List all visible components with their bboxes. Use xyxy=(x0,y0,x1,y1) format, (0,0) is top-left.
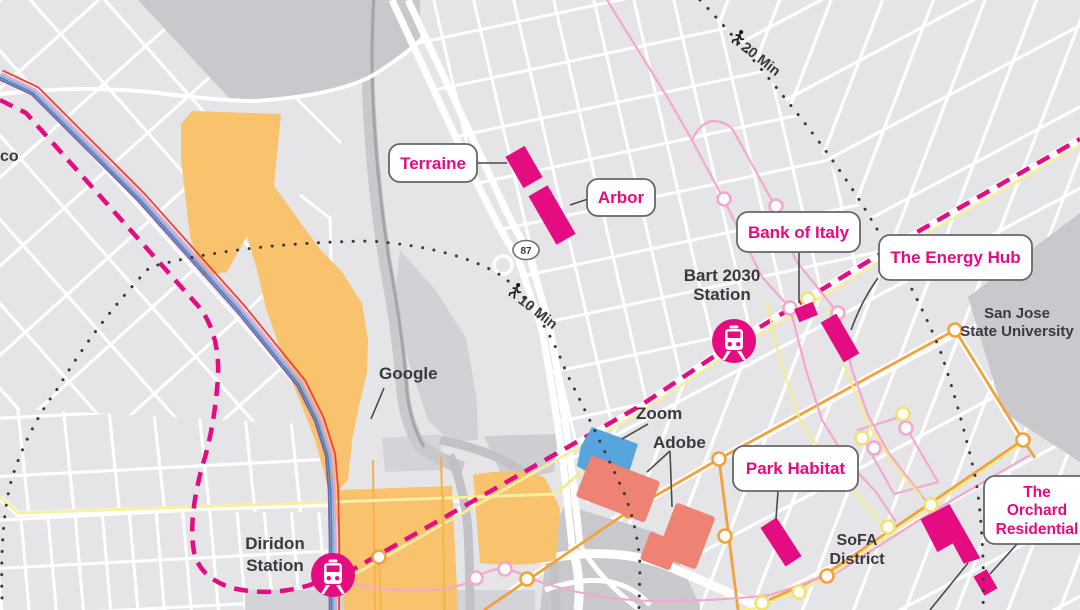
svg-text:Park Habitat: Park Habitat xyxy=(746,459,846,478)
svg-text:Zoom: Zoom xyxy=(636,404,682,423)
svg-text:District: District xyxy=(829,551,885,568)
svg-text:Bank of Italy: Bank of Italy xyxy=(748,223,850,242)
svg-text:Bart 2030: Bart 2030 xyxy=(684,266,761,285)
svg-text:Diridon: Diridon xyxy=(245,534,305,553)
svg-text:Terraine: Terraine xyxy=(400,154,466,173)
svg-text:Google: Google xyxy=(379,364,438,383)
svg-text:San Jose: San Jose xyxy=(984,305,1050,322)
svg-text:Orchard: Orchard xyxy=(1007,502,1067,519)
svg-text:SoFA: SoFA xyxy=(837,532,878,549)
svg-text:Station: Station xyxy=(693,285,751,304)
svg-text:The Energy Hub: The Energy Hub xyxy=(890,248,1020,267)
svg-text:87: 87 xyxy=(520,246,532,257)
svg-text:The: The xyxy=(1023,484,1051,501)
svg-text:Arbor: Arbor xyxy=(598,188,645,207)
svg-text:Residential: Residential xyxy=(996,521,1079,538)
svg-text:Adobe: Adobe xyxy=(653,433,706,452)
svg-text:State University: State University xyxy=(960,323,1074,340)
svg-text:co: co xyxy=(0,148,19,165)
svg-text:Station: Station xyxy=(246,556,304,575)
